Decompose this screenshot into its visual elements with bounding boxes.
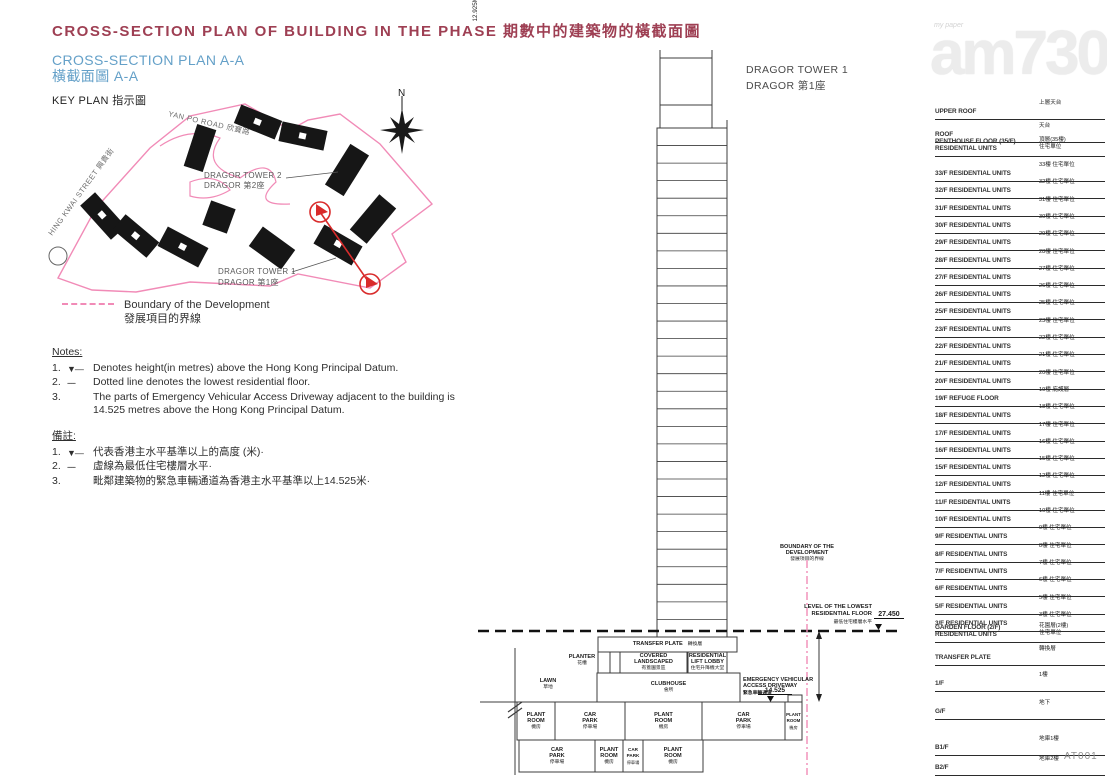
tower-floor-lines (657, 146, 727, 620)
plant-room-label: PLANT ROOM 機房 (595, 740, 623, 772)
covered-landscaped-label: COVERED LANDSCAPED 有蓋園景區 (620, 652, 687, 673)
am730-watermark: my paper am730 (928, 14, 1107, 100)
floor-row: G/F地下 (935, 700, 1105, 720)
cross-section-drawing: DRAGOR TOWER 1 DRAGOR 第1座 TRANSFER PLATE… (470, 40, 940, 779)
boundary-legend: Boundary of the Development 發展項目的界線 (62, 298, 270, 326)
legend-boundary-en: Boundary of the Development (124, 299, 270, 311)
plant-room-label: PLANT ROOM 機房 (785, 702, 802, 740)
drawing-number: AT001 (1064, 751, 1098, 762)
dimension-value: 12.925M(米) (470, 0, 479, 40)
floor-label-column: UPPER ROOF上層天台ROOF天台PENTHOUSE FLOOR (35/… (935, 95, 1106, 779)
dimension-line (816, 631, 822, 702)
watermark-tagline: my paper (934, 22, 963, 29)
car-park-label: CAR PARK 停車場 (555, 702, 625, 740)
note-item: 1.▼—Denotes height(in metres) above the … (52, 362, 472, 377)
notes-zh: 備註: 1.▼—代表香港主水平基準以上的高度 (米)·2.----虛線為最低住宅… (52, 430, 472, 488)
north-label: N (398, 88, 406, 99)
note-item: 3.The parts of Emergency Vehicular Acces… (52, 391, 472, 418)
section-tower-label: DRAGOR TOWER 1 DRAGOR 第1座 (746, 62, 848, 94)
page-title: CROSS-SECTION PLAN OF BUILDING IN THE PH… (52, 20, 701, 41)
brochure-page: { "header": { "title": "CROSS-SECTION PL… (0, 0, 1107, 779)
car-park-label: CAR PARK 停車場 (623, 740, 643, 772)
floor-row: GARDEN FLOOR (2/F) RESIDENTIAL UNITS花園層(… (935, 623, 1105, 643)
keyplan-tower1-en: DRAGOR TOWER 1 (218, 267, 296, 276)
section-boundary-label: BOUNDARY OF THE DEVELOPMENT 發展項目的界線 (767, 544, 847, 563)
landscape-curve-1 (160, 134, 290, 205)
keyplan-tower2-zh: DRAGOR 第2座 (204, 180, 265, 190)
floor-row: 1/F1樓 (935, 672, 1105, 692)
section-subtitle: CROSS-SECTION PLAN A-A 橫截面圖 A-A (52, 52, 244, 84)
keyplan-tower1-zh: DRAGOR 第1座 (218, 277, 279, 287)
plant-room-label: PLANT ROOM 機房 (625, 702, 702, 740)
car-park-label: CAR PARK 停車場 (519, 740, 595, 772)
plant-room-label: PLANT ROOM 機房 (643, 740, 703, 772)
boundary-line-sample (62, 303, 114, 305)
notes-heading: Notes: (52, 346, 472, 360)
floor-row: PENTHOUSE FLOOR (35/F) RESIDENTIAL UNITS… (935, 137, 1105, 157)
subtitle-en: CROSS-SECTION PLAN A-A (52, 52, 244, 68)
transfer-plate-label: TRANSFER PLATE 轉換層 (598, 638, 737, 651)
note-item: 2.----Dotted line denotes the lowest res… (52, 376, 472, 391)
level-marker-27450 (875, 624, 882, 630)
key-plan-map: N YAN PO ROAD 欣寶路 HING KWAI STREET 興貴街 D… (40, 86, 440, 304)
roundabout (49, 247, 67, 265)
lift-lobby-label: RESIDENTIAL LIFT LOBBY 住宅升降機大堂 (688, 652, 727, 673)
subtitle-zh: 橫截面圖 A-A (52, 68, 244, 84)
tower1-leader (292, 258, 336, 272)
note-item: 2.----虛線為最低住宅樓層水平· (52, 460, 472, 475)
eva-level-value: 14.525 (758, 687, 792, 695)
floor-row: TRANSFER PLATE轉換層 (935, 646, 1105, 666)
notes-en: Notes: 1.▼—Denotes height(in metres) abo… (52, 346, 472, 418)
car-park-label: CAR PARK 停車場 (702, 702, 785, 740)
floor-row: UPPER ROOF上層天台 (935, 100, 1105, 120)
note-item: 3.毗鄰建築物的緊急車輛通道為香港主水平基準以上14.525米· (52, 475, 472, 489)
lowest-floor-value: 27.450 (874, 611, 904, 619)
am730-logo: am730 (928, 14, 1107, 94)
note-item: 1.▼—代表香港主水平基準以上的高度 (米)· (52, 446, 472, 461)
keyplan-tower2-en: DRAGOR TOWER 2 (204, 171, 282, 180)
legend-boundary-zh: 發展項目的界線 (124, 313, 201, 325)
clubhouse-label: CLUBHOUSE 會所 (597, 673, 740, 702)
lowest-floor-label-zh: 最低住宅樓層水平 (816, 620, 872, 626)
notes-zh-heading: 備註: (52, 430, 472, 444)
lowest-floor-label-en: LEVEL OF THE LOWEST RESIDENTIAL FLOOR (800, 604, 872, 617)
plant-room-label: PLANT ROOM 機房 (517, 702, 555, 740)
north-arrow-icon (380, 96, 424, 154)
lawn-label: LAWN 草地 (518, 678, 578, 691)
planter-label: PLANTER 花槽 (558, 654, 606, 667)
